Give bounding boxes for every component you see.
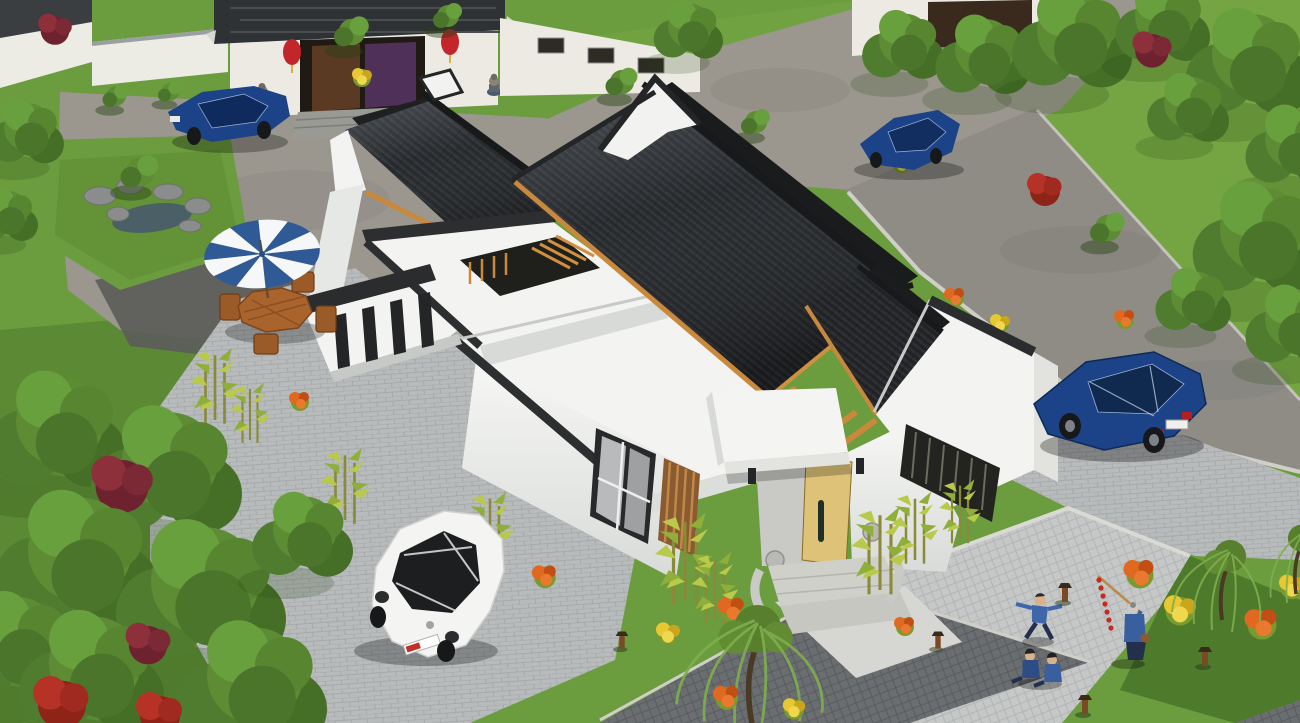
red-lantern [283, 39, 301, 65]
slatted-window [658, 458, 700, 556]
rendered-scene [0, 0, 1300, 723]
shoulder-bag [1141, 634, 1150, 643]
entrance-canopy [712, 388, 848, 462]
taillight [1182, 412, 1192, 419]
door-handle [818, 500, 824, 542]
license-plate [1166, 420, 1188, 429]
vw-badge [426, 621, 434, 629]
